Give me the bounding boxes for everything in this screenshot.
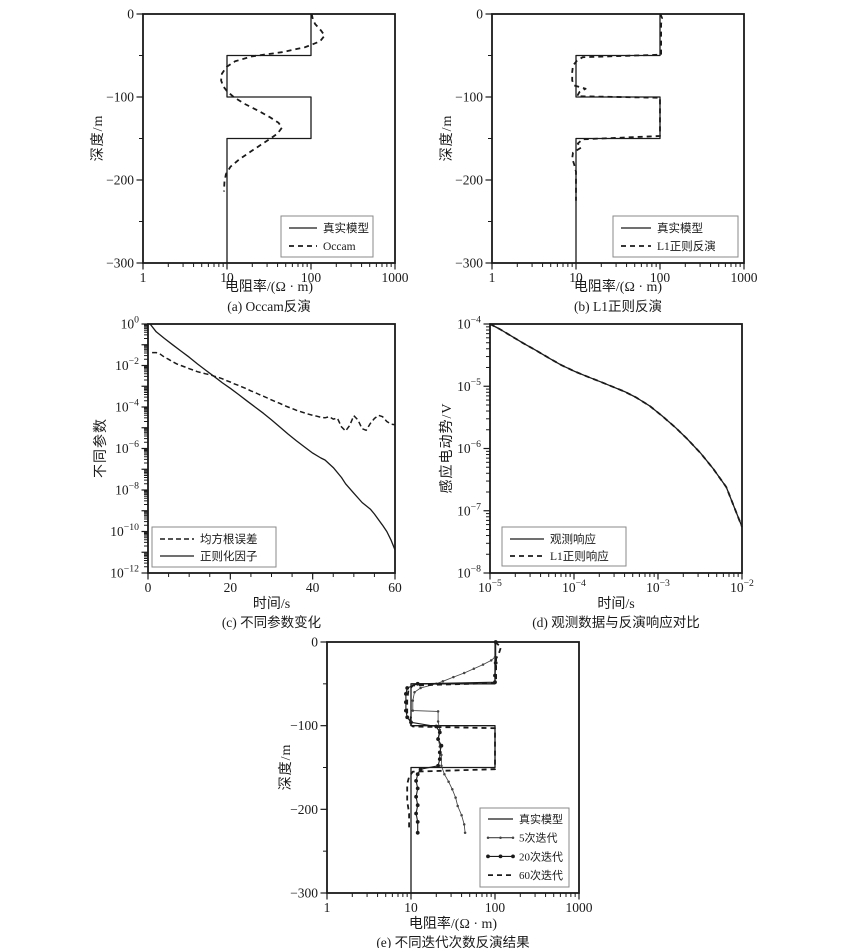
legend-label: 20次迭代 — [519, 849, 563, 863]
legend-label: L1正则响应 — [550, 549, 609, 563]
series-marker-2 — [416, 803, 420, 807]
x-axis-label-c: 时间/s — [148, 593, 395, 613]
y-tick-label: −300 — [455, 256, 483, 271]
series-marker-1 — [419, 687, 422, 690]
caption-e: (e) 不同迭代次数反演结果 — [307, 931, 599, 948]
y-tick-label: −300 — [106, 256, 134, 271]
series-marker-1 — [454, 796, 457, 799]
series-marker-2 — [405, 715, 409, 719]
series-line-1 — [572, 14, 662, 201]
subplot-b: 11010010000−100−200−300真实模型L1正则反演 深度/m 电… — [404, 0, 774, 315]
x-axis-label-b: 电阻率/(Ω · m) — [492, 276, 744, 296]
legend: 均方根误差正则化因子 — [152, 527, 276, 567]
legend: 观测响应L1正则响应 — [502, 527, 626, 566]
series-marker-1 — [442, 680, 445, 683]
legend: 真实模型5次迭代20次迭代60次迭代 — [480, 808, 569, 887]
y-axis-label-b: 深度/m — [436, 115, 456, 162]
subplot-e: 11010010000−100−200−300真实模型5次迭代20次迭代60次迭… — [239, 628, 609, 948]
series-marker-1 — [447, 780, 450, 783]
series-marker-2 — [438, 757, 442, 761]
series-marker-1 — [473, 668, 476, 671]
y-tick-label: 10−6 — [115, 439, 139, 456]
legend-sample-marker — [499, 855, 503, 859]
y-tick-label: 10−8 — [115, 481, 139, 498]
y-tick-label: −100 — [106, 90, 134, 105]
series-line-1 — [490, 324, 742, 527]
legend-sample-marker — [486, 855, 490, 859]
legend-label: 真实模型 — [323, 221, 369, 235]
y-tick-label: −300 — [290, 886, 318, 901]
legend-label: Occam — [323, 241, 356, 253]
y-tick-label: 10−5 — [457, 377, 481, 394]
plot-svg-c: 020406010010−210−410−610−810−1010−12均方根误… — [60, 310, 430, 630]
series-marker-2 — [436, 737, 440, 741]
series-line-0 — [150, 324, 395, 550]
y-tick-label: −200 — [455, 173, 483, 188]
series-marker-1 — [451, 788, 454, 791]
y-tick-label: 0 — [311, 635, 318, 650]
subplot-d: 10−510−410−310−210−410−510−610−710−8观测响应… — [402, 310, 772, 630]
y-tick-label: 10−2 — [115, 356, 139, 373]
series-marker-1 — [413, 691, 416, 694]
subplot-a: 11010010000−100−200−300真实模型Occam 深度/m 电阻… — [55, 0, 425, 315]
series-marker-2 — [436, 764, 440, 768]
series-marker-1 — [460, 814, 463, 817]
y-tick-label: 0 — [476, 7, 483, 22]
legend-label: 5次迭代 — [519, 831, 558, 845]
series-marker-2 — [414, 795, 418, 799]
legend-sample-marker — [499, 836, 502, 839]
series-marker-2 — [440, 744, 444, 748]
legend: 真实模型L1正则反演 — [613, 216, 738, 257]
legend-label: 正则化因子 — [200, 549, 258, 563]
series-marker-2 — [416, 787, 420, 791]
y-tick-label: −200 — [290, 802, 318, 817]
series-marker-1 — [437, 710, 440, 713]
plot-svg-b: 11010010000−100−200−300真实模型L1正则反演 — [404, 0, 774, 315]
y-tick-label: 0 — [127, 7, 134, 22]
y-axis-label-d: 感应电动势/V — [436, 403, 456, 494]
legend: 真实模型Occam — [281, 216, 373, 257]
y-axis-label-a: 深度/m — [87, 115, 107, 162]
y-tick-label: 10−12 — [110, 564, 139, 581]
series-marker-1 — [464, 832, 467, 835]
series-marker-1 — [452, 676, 455, 679]
y-tick-label: 10−6 — [457, 439, 481, 456]
y-axis-label-e: 深度/m — [275, 744, 295, 791]
series-marker-1 — [482, 663, 485, 666]
y-tick-label: −100 — [290, 718, 318, 733]
plot-svg-a: 11010010000−100−200−300真实模型Occam — [55, 0, 425, 315]
legend-label: 60次迭代 — [519, 868, 563, 882]
x-axis-label-d: 时间/s — [490, 593, 742, 613]
series-line-3 — [407, 642, 501, 830]
y-tick-label: −200 — [106, 173, 134, 188]
series-line-1 — [221, 14, 325, 192]
y-axis-label-c: 不同参数 — [90, 418, 110, 478]
legend-label: 均方根误差 — [200, 532, 258, 546]
series-marker-2 — [414, 812, 418, 816]
series-marker-2 — [405, 686, 409, 690]
series-marker-2 — [438, 751, 442, 755]
y-tick-label: 10−8 — [457, 564, 481, 581]
y-tick-label: 10−7 — [457, 501, 481, 518]
legend-label: 观测响应 — [550, 532, 596, 546]
series-marker-1 — [456, 805, 459, 808]
legend-label: 真实模型 — [657, 221, 703, 235]
series-marker-2 — [416, 831, 420, 835]
x-axis-label-e: 电阻率/(Ω · m) — [327, 913, 579, 933]
series-marker-1 — [440, 765, 443, 768]
y-tick-label: 100 — [121, 315, 140, 332]
legend-sample-marker — [511, 855, 515, 859]
x-axis-label-a: 电阻率/(Ω · m) — [143, 276, 395, 296]
series-marker-1 — [463, 672, 466, 675]
series-marker-1 — [443, 773, 446, 776]
series-marker-2 — [416, 820, 420, 824]
series-marker-1 — [437, 720, 440, 723]
series-marker-1 — [490, 659, 493, 662]
plot-svg-d: 10−510−410−310−210−410−510−610−710−8观测响应… — [402, 310, 772, 630]
series-marker-1 — [412, 699, 415, 702]
figure-root: { "figure": { "background": "#ffffff", "… — [0, 0, 850, 948]
legend-label: 真实模型 — [519, 812, 563, 826]
series-marker-2 — [409, 720, 413, 724]
series-marker-1 — [412, 709, 415, 712]
series-marker-2 — [416, 772, 420, 776]
legend-label: L1正则反演 — [657, 239, 716, 253]
series-marker-2 — [414, 779, 418, 783]
y-tick-label: 10−4 — [115, 398, 139, 415]
series-line-2 — [406, 642, 496, 833]
series-marker-1 — [463, 823, 466, 826]
series-marker-2 — [494, 661, 498, 665]
legend-sample-marker — [512, 836, 515, 839]
series-line-1 — [152, 353, 395, 431]
y-tick-label: 10−10 — [110, 522, 139, 539]
series-line-1 — [413, 642, 495, 833]
series-line-0 — [490, 324, 742, 527]
y-tick-label: −100 — [455, 90, 483, 105]
series-marker-2 — [438, 731, 442, 735]
subplot-c: 020406010010−210−410−610−810−1010−12均方根误… — [60, 310, 430, 630]
legend-sample-marker — [487, 836, 490, 839]
y-tick-label: 10−4 — [457, 315, 481, 332]
